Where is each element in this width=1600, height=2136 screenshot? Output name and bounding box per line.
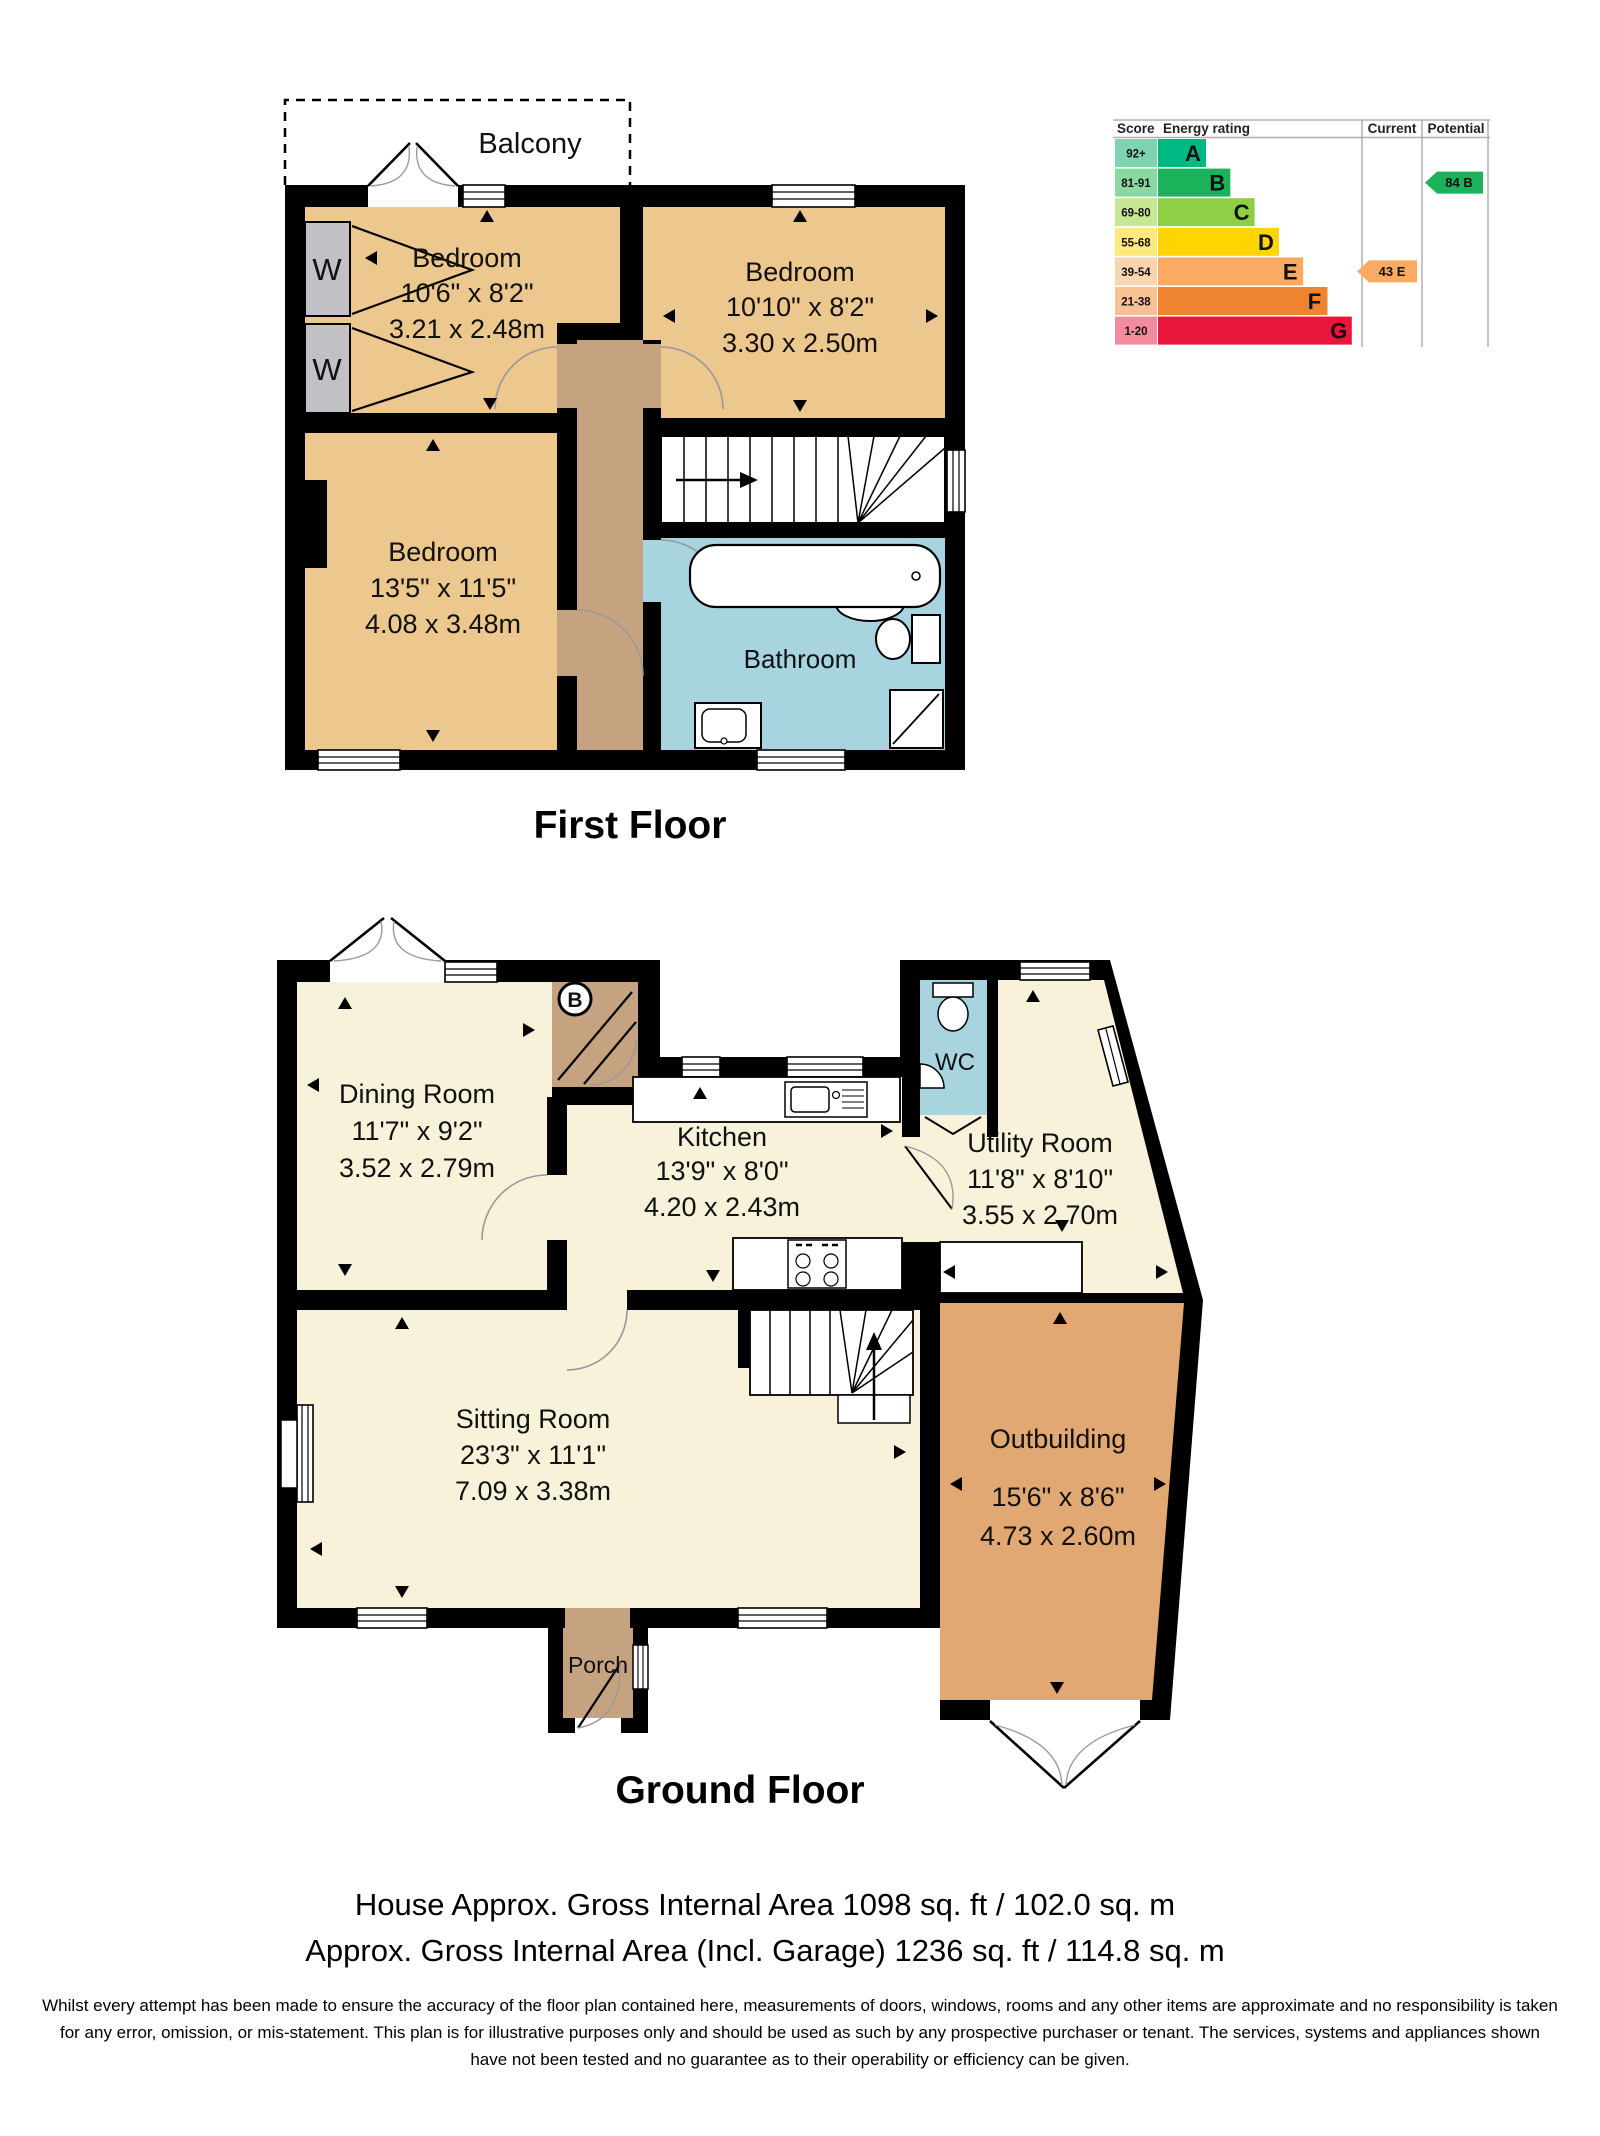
epc-score-range-E: 39-54	[1121, 267, 1151, 279]
epc-header-potential: Potential	[1427, 121, 1484, 136]
bedroom1-imperial: 10'6" x 8'2"	[400, 278, 533, 308]
window	[787, 1057, 863, 1077]
bath-tap	[912, 572, 920, 580]
kitchen-imperial: 13'9" x 8'0"	[655, 1156, 788, 1186]
bedroom2-imperial: 10'10" x 8'2"	[726, 292, 874, 322]
window	[463, 185, 505, 207]
outbuilding-metric: 4.73 x 2.60m	[980, 1521, 1136, 1551]
sink-basin	[791, 1087, 829, 1112]
epc-score-range-C: 69-80	[1121, 208, 1150, 220]
bedroom2-metric: 3.30 x 2.50m	[722, 328, 878, 358]
epc-header-score: Score	[1117, 121, 1155, 136]
window	[357, 1608, 427, 1628]
utility-metric: 3.55 x 2.70m	[962, 1200, 1118, 1230]
porch-inner-door-opening	[565, 1608, 630, 1628]
outbuilding-name: Outbuilding	[990, 1424, 1127, 1454]
epc-score-range-D: 55-68	[1121, 237, 1151, 249]
epc-score-range-G: 1-20	[1124, 326, 1147, 338]
balcony-door-leaves	[368, 143, 458, 186]
floorplan-page: Balcony W W	[0, 0, 1600, 2136]
window	[772, 185, 855, 207]
porch-label: Porch	[568, 1652, 628, 1678]
outbuilding-doors	[990, 1700, 1140, 1788]
floorplan-drawing: Balcony W W	[0, 0, 1600, 2136]
sitting-metric: 7.09 x 3.38m	[455, 1476, 611, 1506]
window	[445, 962, 497, 982]
wardrobe-1-label: W	[312, 252, 342, 287]
wc-cistern	[933, 983, 973, 997]
epc-bar-E	[1158, 257, 1303, 285]
bedroom3-metric: 4.08 x 3.48m	[365, 609, 521, 639]
chimney-nub	[305, 480, 327, 568]
bedroom3-imperial: 13'5" x 11'5"	[370, 573, 516, 603]
dining-french-door-leaves	[330, 918, 445, 961]
wc-toilet-bowl	[938, 997, 968, 1031]
bedroom3-name: Bedroom	[388, 537, 498, 567]
window	[633, 1645, 648, 1689]
toilet-bowl	[876, 619, 910, 659]
kitchen-metric: 4.20 x 2.43m	[644, 1192, 800, 1222]
epc-letter-C: C	[1234, 200, 1250, 225]
landing-upper-floor	[577, 340, 643, 413]
first-floor-plan: Balcony W W	[285, 100, 965, 847]
sitting-door-opening	[567, 1290, 627, 1310]
landing-floor	[577, 413, 643, 750]
dining-wall-stub-top	[547, 1097, 567, 1175]
epc-bar-F	[1158, 287, 1328, 315]
disclaimer-text: Whilst every attempt has been made to en…	[40, 1992, 1560, 2073]
window	[738, 1608, 827, 1628]
epc-header-current: Current	[1368, 121, 1417, 136]
utility-counter	[940, 1242, 1082, 1293]
sink-tap	[833, 1092, 840, 1099]
dining-french-door-arcs	[334, 921, 441, 961]
epc-letter-G: G	[1330, 319, 1347, 344]
epc-current-value: 43 E	[1379, 264, 1406, 279]
utility-imperial: 11'8" x 8'10"	[967, 1164, 1113, 1194]
bedroom1-metric: 3.21 x 2.48m	[389, 314, 545, 344]
ground-floor-plan: B	[277, 918, 1203, 1812]
area-summary-line1: House Approx. Gross Internal Area 1098 s…	[0, 1882, 1530, 1928]
boiler-cupboard: B	[552, 982, 638, 1105]
epc-rows: 92+A81-91B69-80C55-68D39-54E21-38F1-20G4…	[1115, 139, 1483, 345]
balcony-door-arcs	[371, 147, 455, 186]
window	[281, 1405, 313, 1502]
epc-bar-G	[1158, 317, 1352, 345]
wardrobe-2-label: W	[312, 352, 342, 387]
wc-label: WC	[935, 1049, 975, 1076]
epc-letter-E: E	[1283, 259, 1298, 284]
area-summary: House Approx. Gross Internal Area 1098 s…	[0, 1882, 1530, 1974]
dining-wall-stub-bottom	[547, 1240, 567, 1290]
bedroom2-name: Bedroom	[745, 257, 855, 287]
window	[947, 450, 965, 512]
ground-floor-title: Ground Floor	[615, 1769, 864, 1812]
dining-french-door-opening	[330, 960, 445, 982]
dining-imperial: 11'7" x 9'2"	[351, 1116, 482, 1146]
bedroom1-name: Bedroom	[412, 243, 522, 273]
sitting-name: Sitting Room	[456, 1404, 611, 1434]
dining-name: Dining Room	[339, 1079, 495, 1109]
balcony-label: Balcony	[478, 128, 582, 160]
kitchen-name: Kitchen	[677, 1122, 767, 1152]
bathroom-label: Bathroom	[744, 644, 857, 674]
outbuilding-imperial: 15'6" x 8'6"	[991, 1482, 1124, 1512]
epc-chart: Score Energy rating Current Potential 92…	[1113, 120, 1490, 347]
window	[757, 750, 845, 770]
window-sill	[281, 1420, 297, 1488]
epc-letter-F: F	[1308, 289, 1321, 314]
first-floor-title: First Floor	[534, 804, 727, 847]
boiler-label: B	[567, 989, 582, 1012]
dining-metric: 3.52 x 2.79m	[339, 1153, 495, 1183]
balcony-door-opening	[368, 185, 458, 207]
epc-header-rating: Energy rating	[1163, 121, 1250, 136]
epc-potential-value: 84 B	[1445, 175, 1472, 190]
epc-letter-D: D	[1258, 230, 1274, 255]
sitting-imperial: 23'3" x 11'1"	[460, 1440, 606, 1470]
epc-score-range-A: 92+	[1126, 149, 1146, 161]
area-summary-line2: Approx. Gross Internal Area (Incl. Garag…	[0, 1928, 1530, 1974]
epc-letter-B: B	[1209, 171, 1225, 196]
utility-name: Utility Room	[967, 1128, 1113, 1158]
epc-letter-A: A	[1185, 141, 1201, 166]
window	[682, 1057, 720, 1077]
toilet-cistern	[912, 615, 940, 663]
window	[318, 750, 400, 770]
basin-drain	[721, 738, 727, 744]
epc-score-range-F: 21-38	[1121, 297, 1151, 309]
basin-inner	[702, 709, 746, 742]
bathtub	[690, 545, 940, 607]
window	[1020, 962, 1090, 980]
epc-score-range-B: 81-91	[1121, 178, 1151, 190]
